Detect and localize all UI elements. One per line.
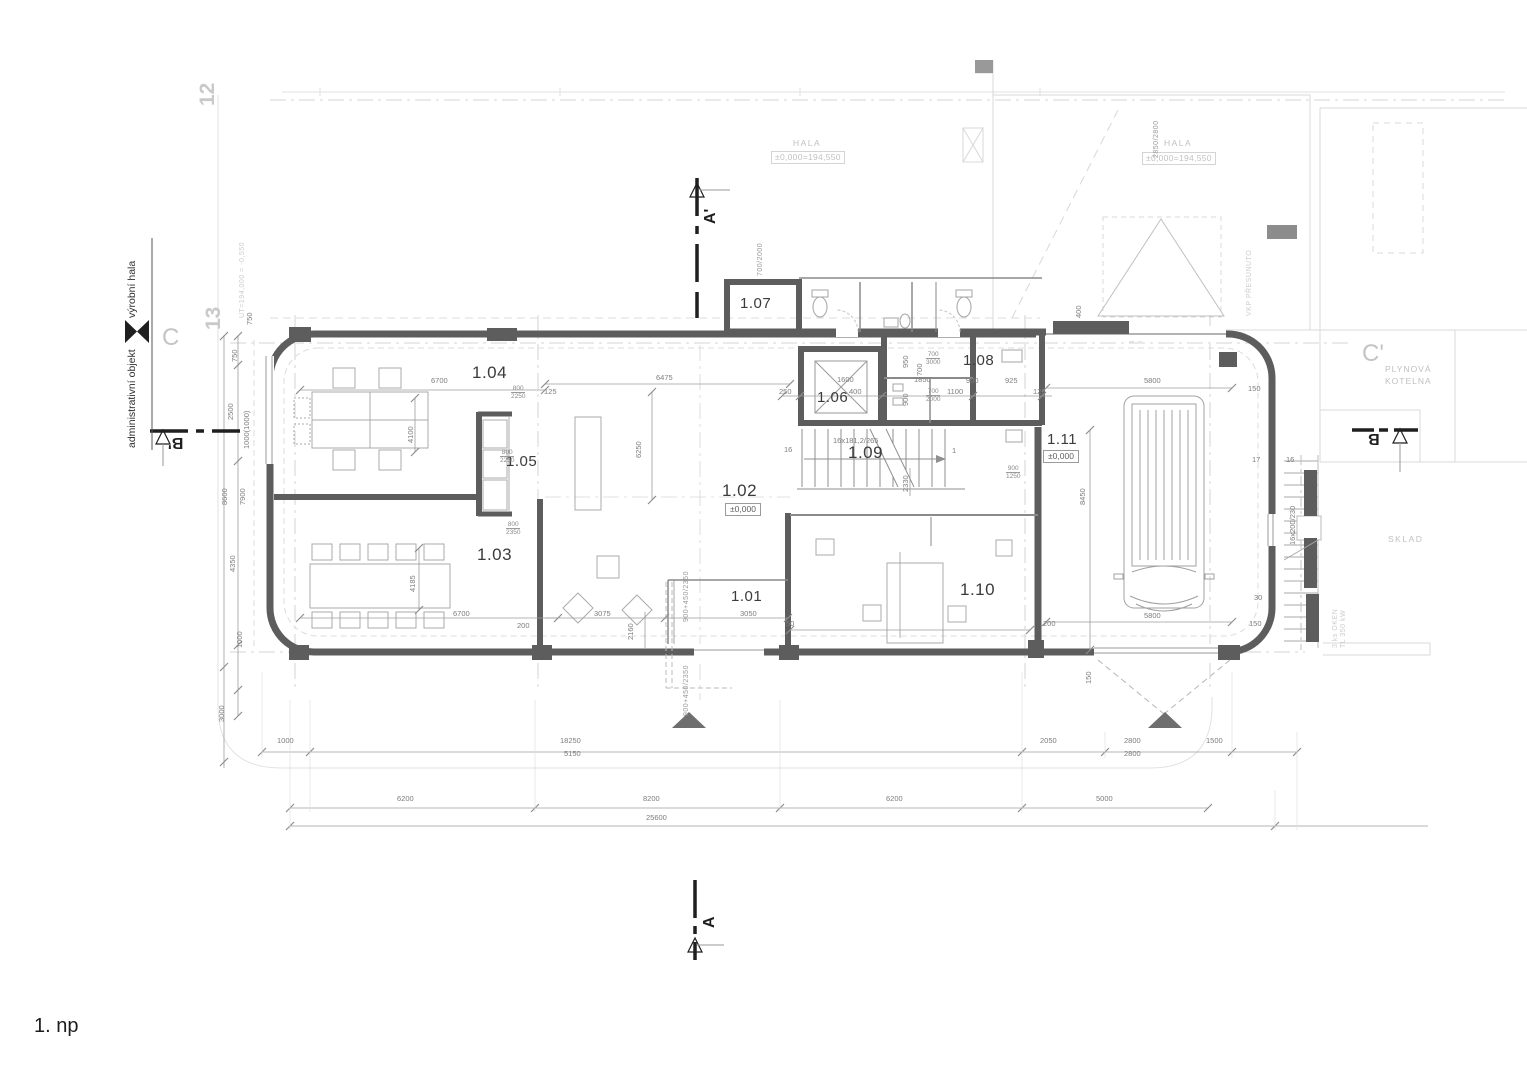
frac-bottom: 2250: [511, 393, 525, 400]
dim-900-core: 900: [966, 377, 979, 385]
dim-4185: 4185: [409, 575, 417, 592]
sklad-label: SKLAD: [1388, 535, 1423, 544]
kotelna-label-line1: PLYNOVÁ: [1385, 365, 1432, 374]
frac-bottom: 1250: [1006, 473, 1020, 480]
dim-frac-800-2350: 8002350: [506, 521, 520, 537]
dim-2800-b: 2800: [1124, 750, 1141, 758]
dim-900-wc: 900: [902, 393, 910, 406]
frac-top: 700: [926, 351, 940, 359]
kotelna-label-line2: KOTELNA: [1385, 377, 1432, 386]
dim-5000: 5000: [1096, 795, 1113, 803]
dim-5150: 5150: [564, 750, 581, 758]
grid-axis-13: 13: [203, 307, 224, 330]
dim-3000-left: 3000: [218, 705, 226, 722]
dim-frac-800-2250-b: 8002250: [500, 449, 514, 465]
dim-750-left: 750: [231, 349, 239, 362]
section-label-a-top: A': [703, 209, 719, 224]
dim-925: 925: [1005, 377, 1018, 385]
dim-250: 250: [779, 388, 792, 396]
hall-context: [963, 60, 1310, 342]
dim-6200-a: 6200: [397, 795, 414, 803]
dim-2500-left: 2500: [227, 403, 235, 420]
room-label-1-03: 1.03: [477, 546, 512, 563]
stair-formula-internal: 16x181,2/265: [833, 437, 878, 445]
dim-1500: 1500: [1206, 737, 1223, 745]
floor-plan-drawing: [0, 0, 1527, 1080]
frac-top: 900: [1006, 465, 1020, 473]
dim-8200: 8200: [643, 795, 660, 803]
room-label-1-01: 1.01: [731, 589, 762, 604]
dim-frac-900-1250: 9001250: [1006, 465, 1020, 481]
room-label-1-10: 1.10: [960, 581, 995, 598]
dim-2160: 2160: [627, 623, 635, 640]
frac-top: 800: [506, 521, 520, 529]
room-label-1-07: 1.07: [740, 296, 771, 311]
dim-8600-left: 8600: [221, 488, 229, 505]
dim-door-900-450-b: 900+450/2350: [683, 665, 690, 716]
room-label-1-06: 1.06: [817, 390, 848, 405]
stair-dim-150-top: 150: [1248, 385, 1261, 393]
room-label-1-08: 1.08: [963, 353, 994, 368]
dimension-lines: [224, 336, 1428, 826]
frac-bottom: 2250: [500, 457, 514, 464]
dim-6200-b: 6200: [886, 795, 903, 803]
frac-top: 700: [926, 388, 940, 396]
room-level-1-11: ±0,000: [1043, 450, 1079, 463]
dim-door-700-2000-top: 700/2000: [757, 243, 764, 276]
dim-7900-left: 7900: [239, 488, 247, 505]
stair-end-number: 1: [952, 447, 956, 455]
section-marker-b-right: [1352, 429, 1418, 472]
stair-number-16: 16: [1286, 456, 1294, 464]
dim-700-wc: 700: [916, 363, 924, 376]
dim-6700-top: 6700: [431, 377, 448, 385]
frac-top: 800: [500, 449, 514, 457]
dim-400-core: 400: [849, 388, 862, 396]
dim-6250: 6250: [635, 441, 643, 458]
entrance-arrow-right: [1148, 712, 1182, 728]
dim-950-wc: 950: [902, 355, 910, 368]
extension-lines: [262, 672, 1297, 830]
dim-750-left-top: 750: [246, 312, 254, 325]
dim-150-bottom-wall: 150: [1085, 671, 1093, 684]
frac-top: 800: [511, 385, 525, 393]
dim-4100: 4100: [407, 426, 415, 443]
okna-note-line1: 3 ks OKEN: [1332, 609, 1339, 648]
dim-3050: 3050: [740, 610, 757, 618]
frac-bottom: 2350: [506, 529, 520, 536]
ut-level-note: UT=194,000 = -0,550: [239, 242, 246, 318]
dim-door-900-450-a: 900+450/2350: [683, 571, 690, 622]
grid-axis-12: 12: [197, 83, 218, 106]
dim-125-b: 125: [1033, 388, 1046, 396]
room-label-1-04: 1.04: [472, 364, 507, 381]
dim-200-mid: 200: [517, 622, 530, 630]
dim-3075: 3075: [594, 610, 611, 618]
section-marker-b-left: [150, 430, 240, 466]
room-label-1-09: 1.09: [848, 444, 883, 461]
dim-1600: 1600: [837, 376, 854, 384]
staircase-external: [1284, 455, 1321, 650]
dim-6700-bottom: 6700: [453, 610, 470, 618]
dim-8450-right: 8450: [1079, 488, 1087, 505]
hala-right-label: HALA: [1164, 139, 1192, 148]
stair-start-number: 16: [784, 446, 792, 454]
dim-5800-bottom: 5800: [1144, 612, 1161, 620]
dim-frac-700-3000: 7003000: [926, 351, 940, 367]
dim-2800-a: 2800: [1124, 737, 1141, 745]
stair-number-30: 30: [1254, 594, 1262, 602]
dim-1000-1000-left: 1000(1000): [243, 411, 251, 449]
hala-left-level: ±0,000=194,550: [771, 151, 845, 164]
dim-18250: 18250: [560, 737, 581, 745]
grid-axis-c: C: [162, 326, 179, 350]
stair-dim-150-bottom: 150: [1249, 620, 1262, 628]
dim-2330: 2330: [902, 475, 910, 492]
floor-plan-canvas: 1. np 12 13 C C' A' A B' B HALA ±0,000=1…: [0, 0, 1527, 1080]
room-level-1-02: ±0,000: [725, 503, 761, 516]
stair-number-17: 17: [1252, 456, 1260, 464]
dim-50-left: 50: [786, 620, 794, 628]
frac-bottom: 2000: [926, 396, 940, 403]
room-label-1-11: 1.11: [1047, 432, 1077, 447]
garage-gate: [1053, 321, 1129, 334]
dim-1000-left-b: 1000: [236, 631, 244, 648]
section-label-a-bottom: A: [702, 916, 718, 928]
drawing-title: 1. np: [34, 1016, 78, 1036]
okna-note-line2: TL 350 kW: [1340, 610, 1347, 648]
room-label-1-02: 1.02: [722, 482, 757, 499]
administrativni-objekt-label: administrativní objekt: [127, 349, 138, 448]
dim-1000: 1000: [277, 737, 294, 745]
grid-axis-c-prime: C': [1362, 342, 1384, 366]
dim-total-25600: 25600: [646, 814, 667, 822]
dim-6475: 6475: [656, 374, 673, 382]
vkp-note: VKP PŘESUNUTO: [1246, 250, 1253, 316]
stair-formula-external: 16x200/230: [1289, 506, 1297, 545]
dim-1100: 1100: [947, 388, 963, 396]
furniture: [294, 368, 1012, 643]
dim-frac-800-2250-a: 8002250: [511, 385, 525, 401]
dim-5800-top: 5800: [1144, 377, 1161, 385]
dim-2850-2800: 2850/2800: [1153, 120, 1160, 158]
vyrobni-hala-label: výrobní hala: [127, 261, 138, 318]
section-label-b-right: B: [1368, 430, 1380, 446]
dim-200-right: 200: [1043, 620, 1056, 628]
dim-4350-left: 4350: [229, 555, 237, 572]
section-label-b-left: B': [168, 434, 183, 450]
dim-frac-700-2000: 7002000: [926, 388, 940, 404]
frac-bottom: 3000: [926, 359, 940, 366]
hala-left-label: HALA: [793, 139, 821, 148]
dim-125-a: 125: [544, 388, 557, 396]
dim-2050: 2050: [1040, 737, 1057, 745]
dim-1850: 1850: [914, 376, 931, 384]
dim-400-right: 400: [1075, 305, 1083, 318]
